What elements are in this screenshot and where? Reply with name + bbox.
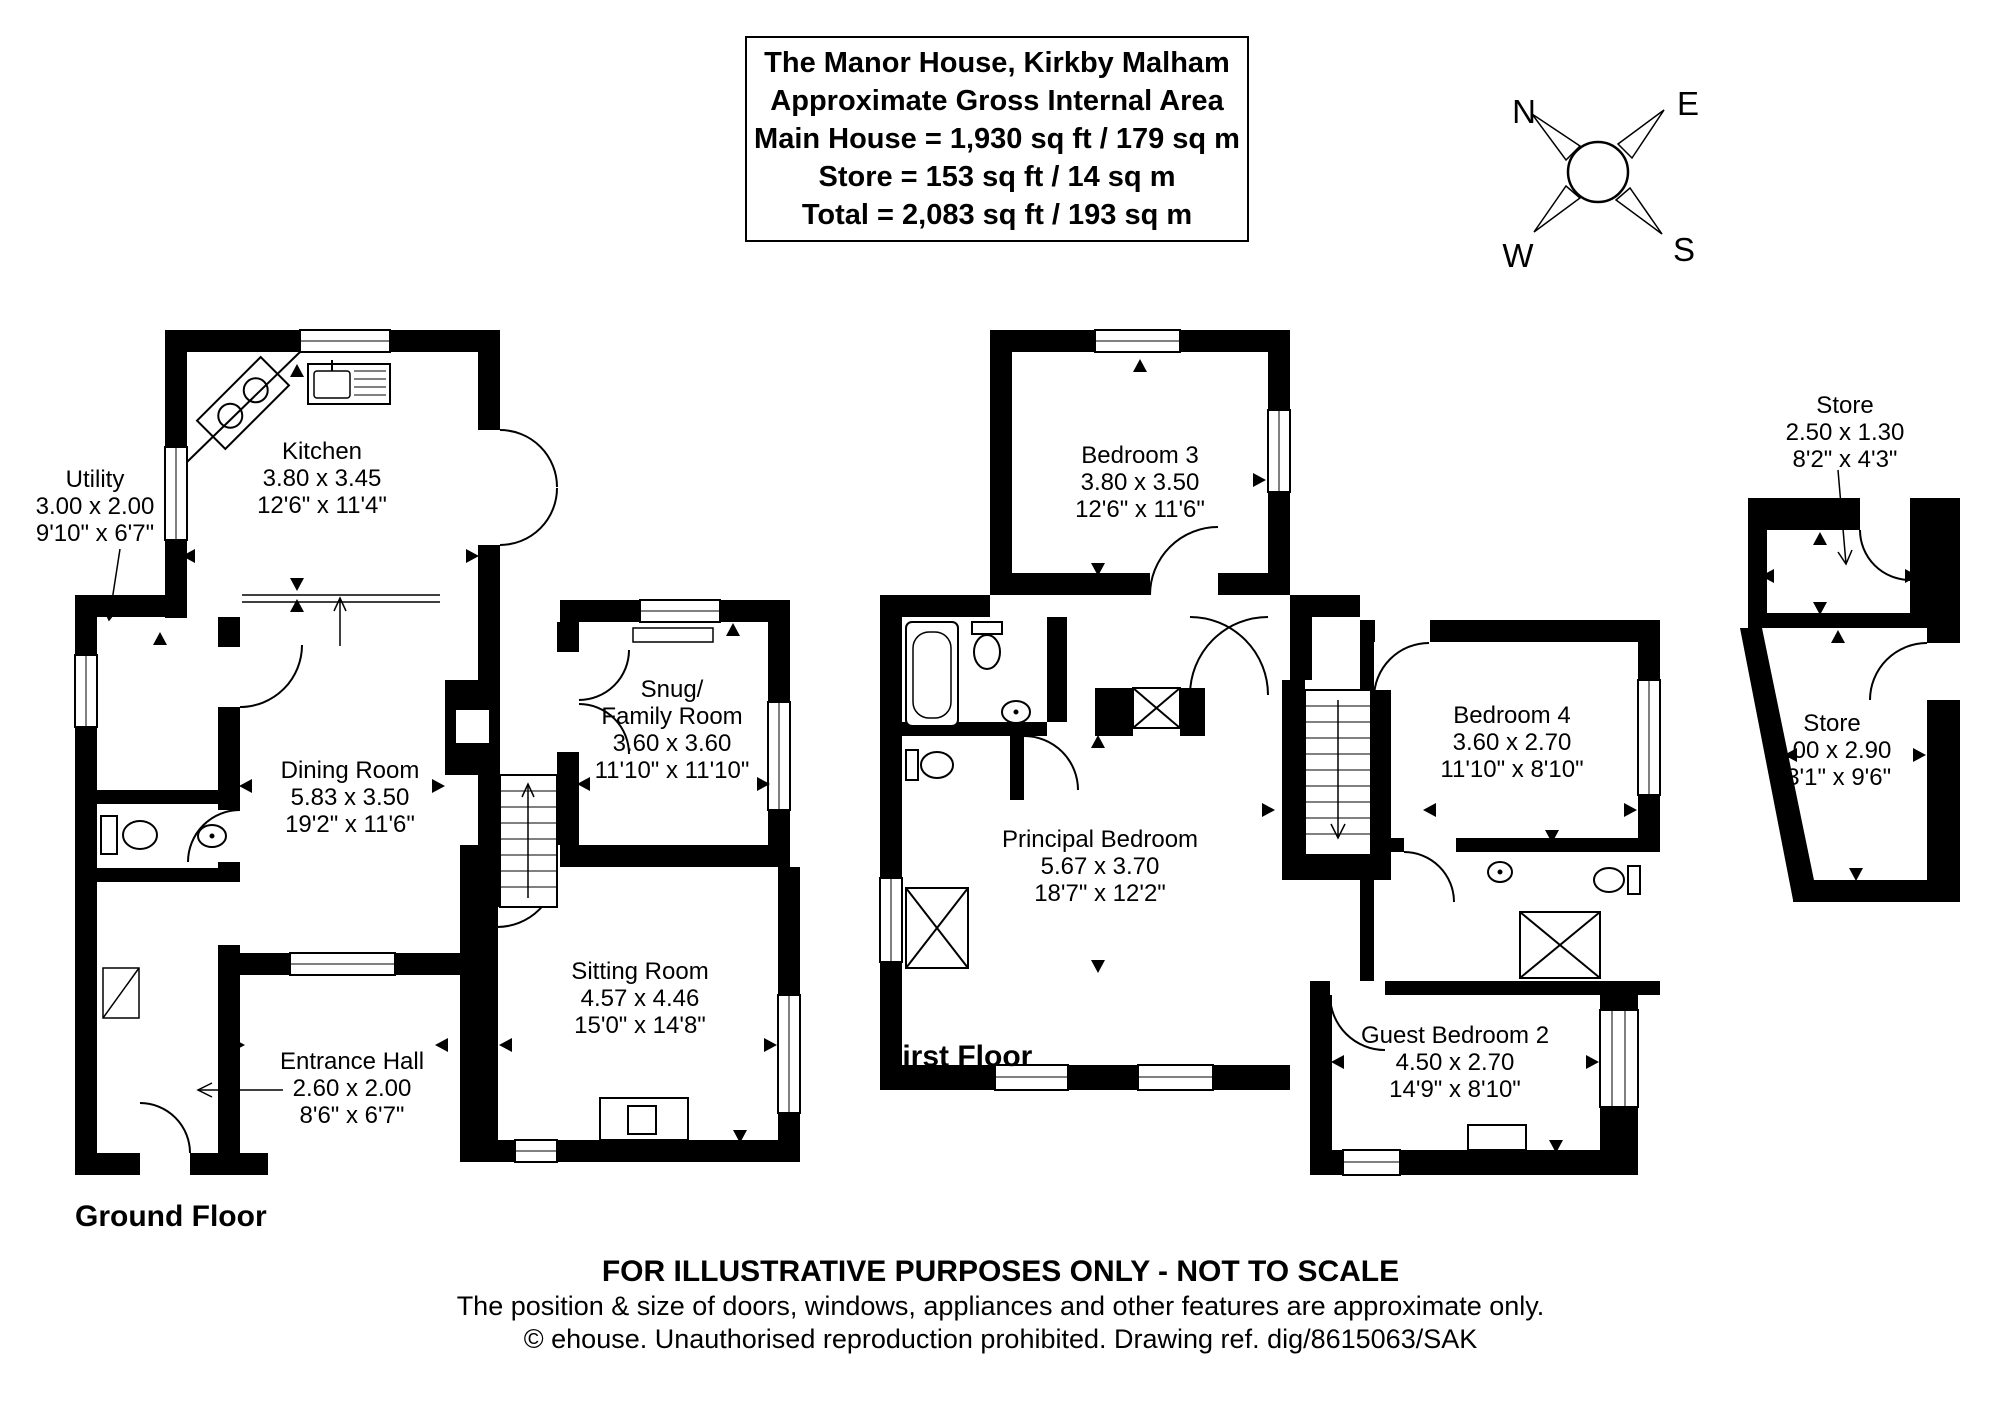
ensuite-toilet-icon	[972, 622, 1002, 669]
room-name: Kitchen	[257, 438, 387, 465]
compass-west-label: W	[1502, 237, 1533, 275]
title-box: The Manor House, Kirkby Malham Approxima…	[745, 36, 1249, 242]
room-dim-imperial: 9'10" x 6'7"	[36, 520, 155, 547]
room-dim-metric: 2.50 x 1.30	[1786, 419, 1905, 446]
room-dim-metric: 3.80 x 3.45	[257, 465, 387, 492]
room-name: Principal Bedroom	[1002, 826, 1198, 853]
room-label-snug: Snug/ Family Room 3.60 x 3.60 11'10" x 1…	[595, 676, 750, 784]
kitchen-hob-icon	[197, 357, 289, 449]
kitchen-threshold	[242, 595, 440, 646]
room-label-bedroom-3: Bedroom 3 3.80 x 3.50 12'6" x 11'6"	[1075, 442, 1205, 523]
footer-disclaimer: FOR ILLUSTRATIVE PURPOSES ONLY - NOT TO …	[0, 1254, 2001, 1356]
room-dim-metric: 3.80 x 3.50	[1075, 469, 1205, 496]
stairs-ground	[500, 775, 557, 907]
compass-south-label: S	[1673, 231, 1695, 269]
room-dim-metric: 4.00 x 2.90	[1773, 737, 1892, 764]
title-line-4: Store = 153 sq ft / 14 sq m	[747, 158, 1247, 196]
entrance-leader-arrow	[198, 1083, 283, 1097]
room-dim-metric: 5.83 x 3.50	[281, 784, 420, 811]
ensuite-basin-icon	[1002, 701, 1030, 723]
room-label-sitting-room: Sitting Room 4.57 x 4.46 15'0" x 14'8"	[571, 958, 708, 1039]
wc2-toilet-icon	[906, 750, 953, 780]
bathroom-basin-icon	[1488, 862, 1512, 882]
hall-cupboard-icon	[103, 968, 139, 1018]
title-line-5: Total = 2,083 sq ft / 193 sq m	[747, 196, 1247, 234]
room-dim-metric: 3.60 x 2.70	[1440, 729, 1583, 756]
room-label-kitchen: Kitchen 3.80 x 3.45 12'6" x 11'4"	[257, 438, 387, 519]
ensuite-bath-icon	[906, 622, 958, 726]
wc-basin-icon	[198, 825, 226, 847]
room-name: Entrance Hall	[280, 1048, 424, 1075]
wc-toilet-icon	[101, 816, 157, 854]
principal-wardrobe-icon	[906, 888, 968, 968]
room-label-entrance-hall: Entrance Hall 2.60 x 2.00 8'6" x 6'7"	[280, 1048, 424, 1129]
footer-line-3: © ehouse. Unauthorised reproduction proh…	[0, 1323, 2001, 1356]
room-name: Bedroom 4	[1440, 702, 1583, 729]
room-label-utility: Utility 3.00 x 2.00 9'10" x 6'7"	[36, 466, 155, 547]
room-dim-metric: 3.60 x 3.60	[595, 730, 750, 757]
room-label-bedroom-4: Bedroom 4 3.60 x 2.70 11'10" x 8'10"	[1440, 702, 1583, 783]
title-line-3: Main House = 1,930 sq ft / 179 sq m	[747, 120, 1247, 158]
room-dim-imperial: 14'9" x 8'10"	[1361, 1076, 1549, 1103]
footer-line-2: The position & size of doors, windows, a…	[0, 1290, 2001, 1323]
room-dim-imperial: 11'10" x 8'10"	[1440, 756, 1583, 783]
room-label-dining-room: Dining Room 5.83 x 3.50 19'2" x 11'6"	[281, 757, 420, 838]
room-name: Snug/	[595, 676, 750, 703]
room-name: Guest Bedroom 2	[1361, 1022, 1549, 1049]
room-dim-imperial: 15'0" x 14'8"	[571, 1012, 708, 1039]
room-label-guest-bedroom-2: Guest Bedroom 2 4.50 x 2.70 14'9" x 8'10…	[1361, 1022, 1549, 1103]
room-dim-imperial: 18'7" x 12'2"	[1002, 880, 1198, 907]
guest-furniture	[1468, 1125, 1526, 1150]
sitting-fireplace-icon	[600, 1098, 688, 1140]
room-name-2: Family Room	[595, 703, 750, 730]
room-name: Store	[1786, 392, 1905, 419]
floorplan-page: The Manor House, Kirkby Malham Approxima…	[0, 0, 2001, 1416]
room-dim-metric: 5.67 x 3.70	[1002, 853, 1198, 880]
first-floor-label: First Floor	[884, 1040, 1032, 1074]
room-label-store-lower: Store 4.00 x 2.90 13'1" x 9'6"	[1773, 710, 1892, 791]
title-line-2: Approximate Gross Internal Area	[747, 82, 1247, 120]
room-dim-imperial: 12'6" x 11'4"	[257, 492, 387, 519]
ensuite-shower-icon	[1133, 688, 1180, 728]
kitchen-sink-icon	[308, 360, 390, 404]
room-name: Store	[1773, 710, 1892, 737]
room-dim-metric: 4.57 x 4.46	[571, 985, 708, 1012]
room-dim-imperial: 11'10" x 11'10"	[595, 757, 750, 784]
room-dim-imperial: 13'1" x 9'6"	[1773, 764, 1892, 791]
store-plan	[1740, 470, 1960, 902]
room-dim-imperial: 12'6" x 11'6"	[1075, 496, 1205, 523]
room-dim-metric: 3.00 x 2.00	[36, 493, 155, 520]
room-name: Bedroom 3	[1075, 442, 1205, 469]
room-dim-imperial: 8'6" x 6'7"	[280, 1102, 424, 1129]
room-dim-imperial: 19'2" x 11'6"	[281, 811, 420, 838]
fireplace-chimney-inset	[456, 710, 489, 743]
bathroom-toilet-icon	[1594, 866, 1640, 894]
stairs-first	[1305, 690, 1371, 855]
bathroom-shower-icon	[1520, 912, 1600, 978]
title-line-1: The Manor House, Kirkby Malham	[747, 44, 1247, 82]
compass-icon	[1532, 110, 1664, 234]
store-walls	[1740, 498, 1960, 902]
snug-window-seat	[633, 628, 713, 642]
room-dim-imperial: 8'2" x 4'3"	[1786, 446, 1905, 473]
ground-floor-label: Ground Floor	[75, 1200, 267, 1234]
room-label-store-upper: Store 2.50 x 1.30 8'2" x 4'3"	[1786, 392, 1905, 473]
footer-line-1: FOR ILLUSTRATIVE PURPOSES ONLY - NOT TO …	[0, 1254, 2001, 1290]
room-name: Dining Room	[281, 757, 420, 784]
compass-north-label: N	[1512, 93, 1536, 131]
room-dim-metric: 2.60 x 2.00	[280, 1075, 424, 1102]
room-dim-metric: 4.50 x 2.70	[1361, 1049, 1549, 1076]
room-name: Utility	[36, 466, 155, 493]
room-name: Sitting Room	[571, 958, 708, 985]
compass-east-label: E	[1677, 85, 1699, 123]
room-label-principal-bedroom: Principal Bedroom 5.67 x 3.70 18'7" x 12…	[1002, 826, 1198, 907]
